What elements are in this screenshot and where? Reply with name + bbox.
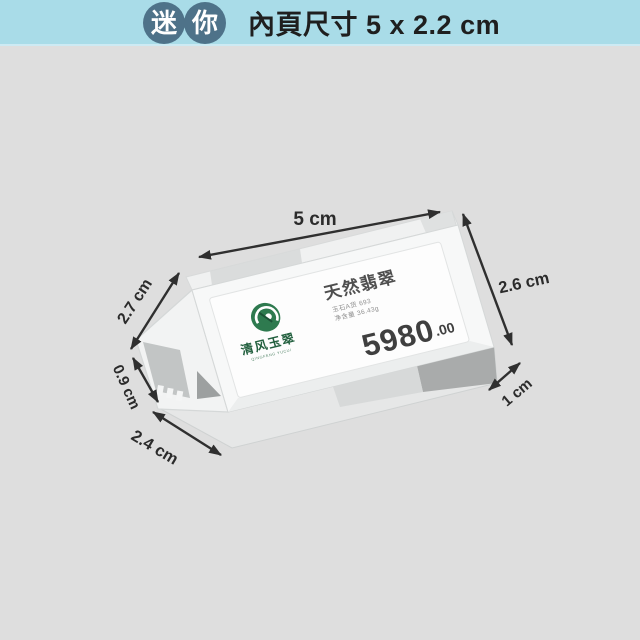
badge-char-right: 你 [192, 10, 218, 36]
header-bar: 迷 你 內頁尺寸 5 x 2.2 cm [0, 0, 640, 46]
dimension-label-bottom-right: 1 cm [499, 375, 536, 410]
dimension-label-right: 2.6 cm [497, 269, 551, 297]
badge-circle-left: 迷 [143, 2, 185, 44]
product-illustration: 天然翡翠 玉石A货 693 净含量 36.43g 5980.00 清风玉翠 QI… [0, 46, 640, 640]
mini-badge: 迷 你 [143, 2, 229, 44]
header-title: 內頁尺寸 5 x 2.2 cm [248, 0, 500, 44]
dimension-label-bottom-left: 2.4 cm [128, 427, 181, 469]
badge-circle-right: 你 [184, 2, 226, 44]
product-stage: 天然翡翠 玉石A货 693 净含量 36.43g 5980.00 清风玉翠 QI… [0, 46, 640, 640]
badge-char-left: 迷 [151, 10, 177, 36]
dimension-label-top: 5 cm [293, 209, 336, 230]
dimension-label-left-lower: 0.9 cm [109, 362, 144, 412]
